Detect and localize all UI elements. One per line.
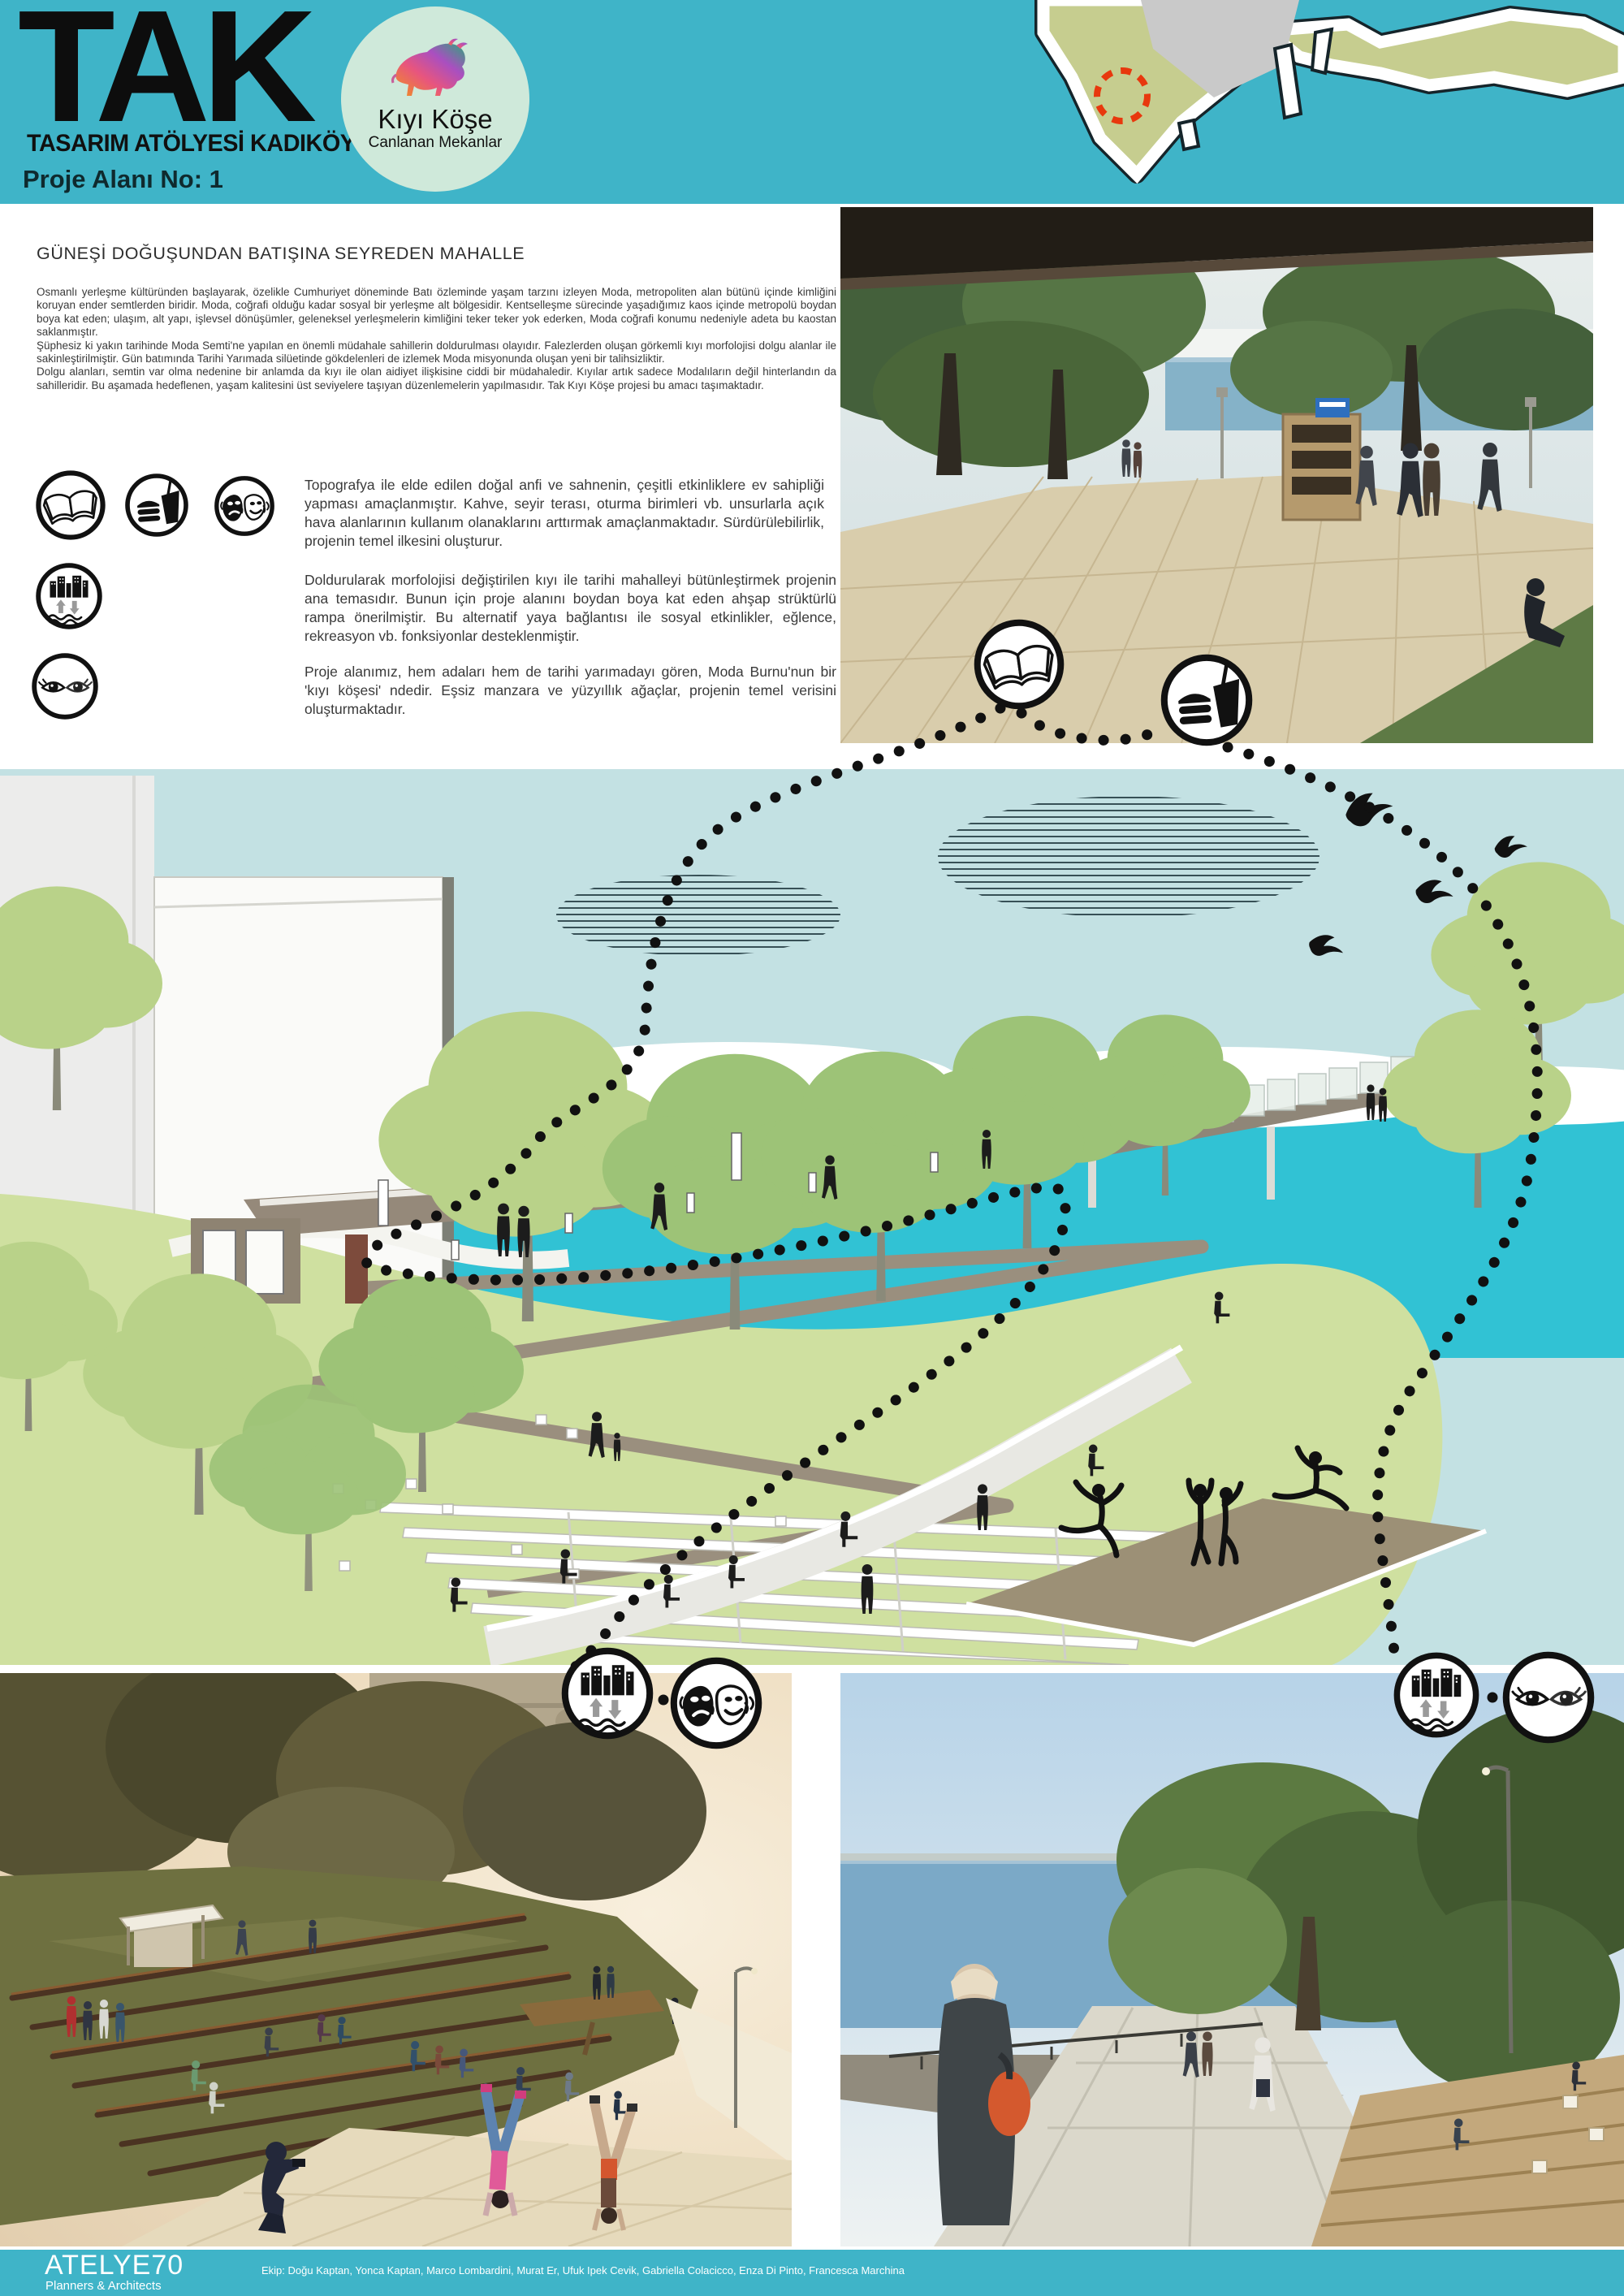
- location-map: [999, 0, 1624, 204]
- open-book-icon: [35, 469, 106, 541]
- badge-ellipse: [341, 6, 529, 192]
- tak-logo: TAK: [18, 5, 309, 128]
- intro-paragraph-3: Dolgu alanları, semtin var olma nedenine…: [37, 365, 836, 392]
- food-drink-icon: [1160, 653, 1254, 747]
- theater-masks-icon: [669, 1656, 763, 1750]
- masterplan-illustration: [0, 769, 1624, 1665]
- city-waterfront-icon: [1393, 1651, 1480, 1739]
- badge-title: Kıyı Köşe: [341, 104, 529, 135]
- kiyi-kose-badge: [341, 6, 529, 192]
- theater-masks-icon: [214, 475, 275, 537]
- city-waterfront-icon: [35, 562, 103, 630]
- competition-poster-board: TAK TASARIM ATÖLYESİ KADIKÖY Proje Alanı…: [0, 0, 1624, 2296]
- orange-bag: [988, 2071, 1030, 2136]
- team-credits: Ekip: Doğu Kaptan, Yonca Kaptan, Marco L…: [261, 2264, 905, 2277]
- project-area-label: Proje Alanı No: 1: [23, 165, 223, 194]
- badge-subtitle: Canlanan Mekanlar: [341, 134, 529, 152]
- city-waterfront-icon: [560, 1646, 654, 1740]
- eyes-icon: [1501, 1650, 1596, 1745]
- intro-paragraph-1: Osmanlı yerleşme kültüründen başlayarak,…: [37, 286, 836, 339]
- book-share-kiosk: [1283, 398, 1360, 520]
- tak-logo-subtitle: TASARIM ATÖLYESİ KADIKÖY: [27, 130, 356, 158]
- render-photo-coastal-walk: [840, 1673, 1624, 2246]
- feature-text-ramp: Doldurularak morfolojisi değiştirilen kı…: [304, 571, 836, 646]
- hatched-cloud: [556, 875, 840, 956]
- hatched-cloud: [938, 796, 1319, 918]
- page-title: GÜNEŞİ DOĞUŞUNDAN BATIŞINA SEYREDEN MAHA…: [37, 244, 767, 264]
- eyes-icon: [31, 652, 99, 720]
- studio-subtitle: Planners & Architects: [45, 2279, 162, 2293]
- intro-text: Osmanlı yerleşme kültüründen başlayarak,…: [37, 286, 836, 392]
- open-book-icon: [973, 618, 1065, 711]
- render-photo-amphitheater: [0, 1673, 792, 2246]
- intro-paragraph-2: Şüphesiz ki yakın tarihinde Moda Semti'n…: [37, 339, 836, 366]
- feature-text-activities: Topografya ile elde edilen doğal anfi ve…: [304, 476, 824, 551]
- studio-name: ATELYE70: [45, 2253, 184, 2277]
- food-drink-icon: [124, 473, 189, 538]
- feature-text-view: Proje alanımız, hem adaları hem de tarih…: [304, 663, 836, 719]
